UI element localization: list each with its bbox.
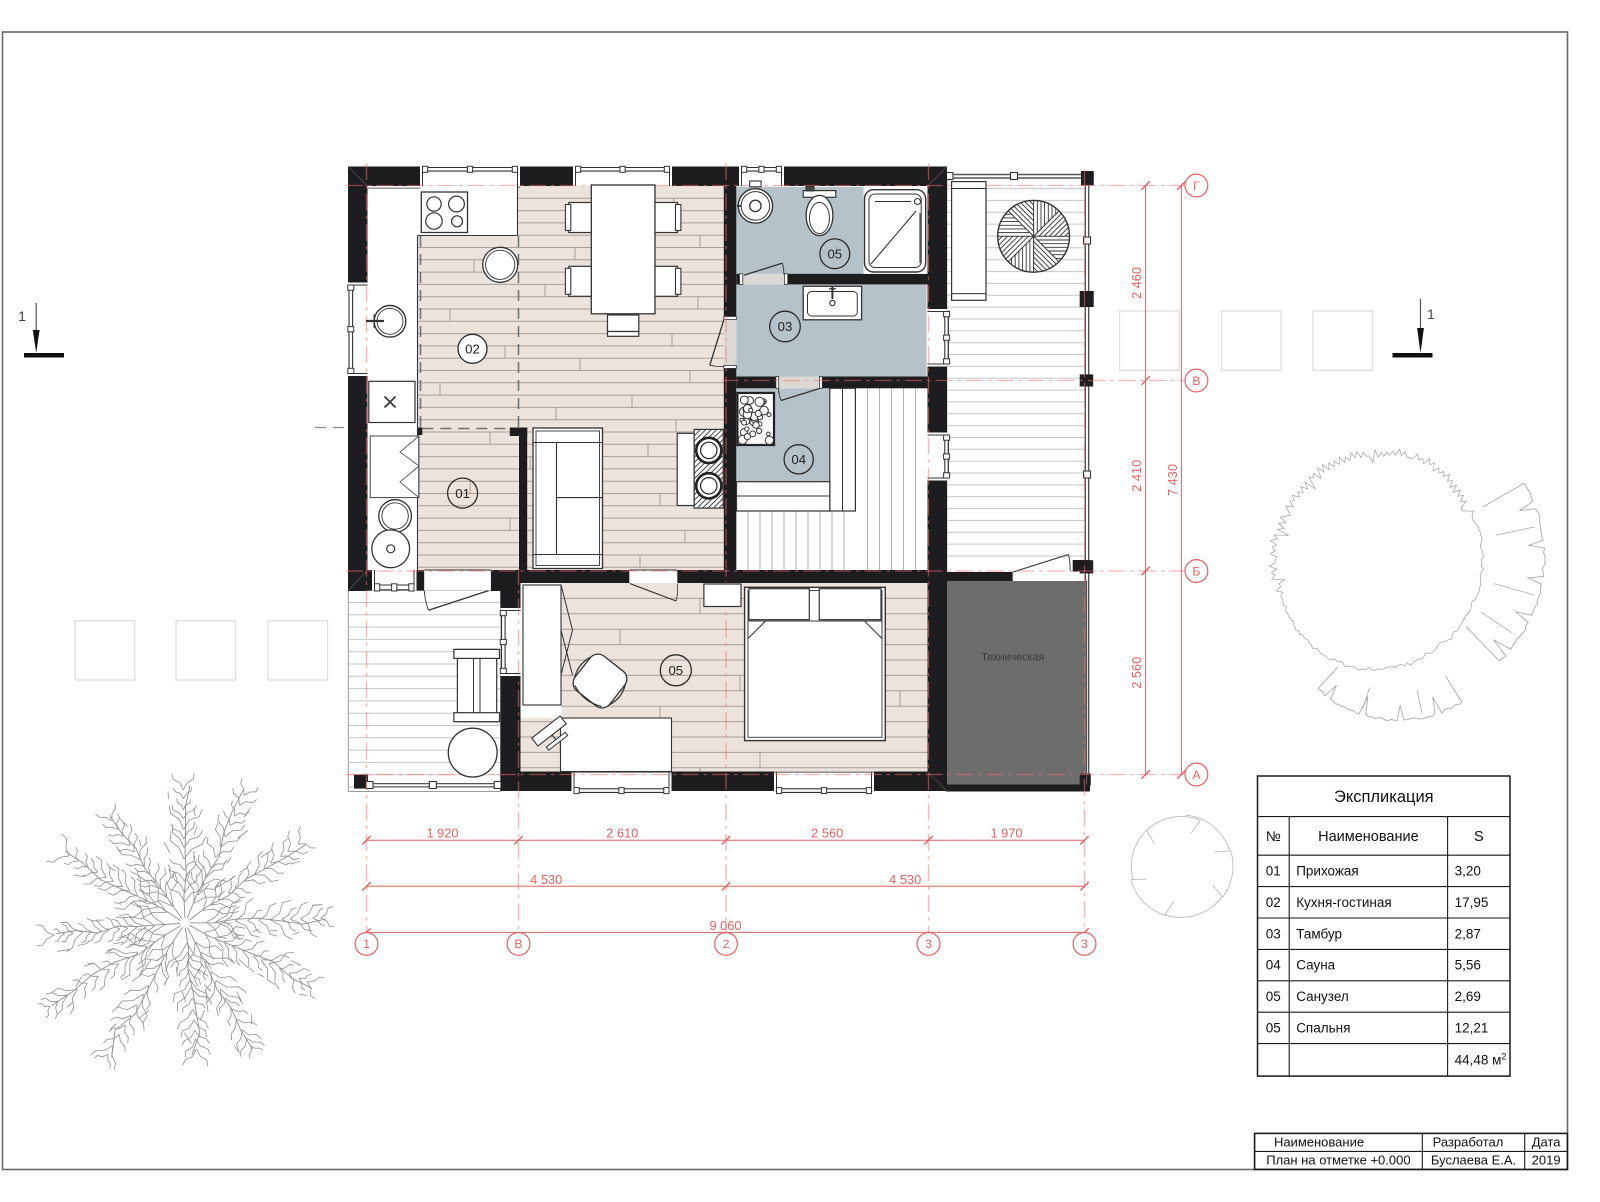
svg-text:05: 05 — [1266, 1021, 1281, 1036]
svg-text:Буслаева Е.А.: Буслаева Е.А. — [1431, 1153, 1516, 1168]
svg-text:В: В — [1192, 374, 1200, 388]
svg-text:01: 01 — [1266, 864, 1281, 879]
svg-text:2 460: 2 460 — [1129, 267, 1144, 299]
svg-text:1: 1 — [1427, 306, 1435, 322]
svg-text:Сауна: Сауна — [1296, 958, 1335, 973]
svg-text:12,21: 12,21 — [1455, 1021, 1489, 1036]
svg-text:3: 3 — [925, 937, 932, 951]
svg-text:3: 3 — [1081, 937, 1088, 951]
svg-text:2 410: 2 410 — [1129, 460, 1144, 492]
svg-text:3,20: 3,20 — [1455, 864, 1481, 879]
svg-text:1: 1 — [18, 308, 26, 324]
svg-text:01: 01 — [455, 486, 470, 501]
svg-text:2: 2 — [723, 937, 730, 951]
svg-text:2,69: 2,69 — [1455, 989, 1481, 1004]
svg-text:2019: 2019 — [1532, 1153, 1561, 1168]
svg-text:Прихожая: Прихожая — [1296, 864, 1359, 879]
svg-text:Наименование: Наименование — [1274, 1135, 1364, 1150]
svg-text:4 530: 4 530 — [889, 872, 921, 887]
svg-text:7 430: 7 430 — [1165, 464, 1180, 496]
svg-text:17,95: 17,95 — [1455, 895, 1489, 910]
svg-text:2 610: 2 610 — [606, 826, 638, 841]
svg-text:2 560: 2 560 — [1129, 657, 1144, 689]
svg-text:В: В — [514, 937, 522, 951]
svg-text:Тамбур: Тамбур — [1296, 926, 1342, 941]
svg-text:Кухня-гостиная: Кухня-гостиная — [1296, 895, 1392, 910]
svg-text:05: 05 — [827, 247, 842, 262]
svg-text:02: 02 — [1266, 895, 1281, 910]
svg-text:05: 05 — [1266, 989, 1281, 1004]
svg-text:Наименование: Наименование — [1318, 829, 1419, 845]
svg-text:Дата: Дата — [1532, 1135, 1562, 1150]
svg-text:1 920: 1 920 — [426, 826, 458, 841]
svg-text:S: S — [1474, 829, 1484, 845]
svg-text:1: 1 — [363, 937, 370, 951]
svg-text:Г: Г — [1193, 179, 1200, 193]
svg-text:44,48 м2: 44,48 м2 — [1455, 1051, 1507, 1067]
svg-text:4 530: 4 530 — [530, 872, 562, 887]
svg-text:Разработал: Разработал — [1433, 1135, 1504, 1150]
svg-text:Б: Б — [1192, 564, 1200, 578]
svg-text:2 560: 2 560 — [811, 826, 843, 841]
svg-text:2,87: 2,87 — [1455, 926, 1481, 941]
svg-text:02: 02 — [465, 342, 480, 357]
svg-text:03: 03 — [1266, 926, 1281, 941]
svg-text:1 970: 1 970 — [990, 826, 1022, 841]
svg-text:04: 04 — [791, 452, 806, 467]
svg-text:9 060: 9 060 — [709, 918, 741, 933]
svg-text:Спальня: Спальня — [1296, 1021, 1350, 1036]
svg-text:5,56: 5,56 — [1455, 958, 1481, 973]
svg-text:№: № — [1266, 828, 1281, 844]
svg-text:План на отметке +0.000: План на отметке +0.000 — [1266, 1153, 1410, 1168]
svg-text:Экспликация: Экспликация — [1334, 788, 1434, 806]
svg-text:Санузел: Санузел — [1296, 989, 1349, 1004]
svg-text:04: 04 — [1266, 958, 1282, 973]
svg-text:05: 05 — [668, 663, 683, 678]
svg-text:03: 03 — [778, 319, 793, 334]
svg-text:А: А — [1192, 768, 1201, 782]
svg-text:Техническая: Техническая — [981, 652, 1044, 664]
